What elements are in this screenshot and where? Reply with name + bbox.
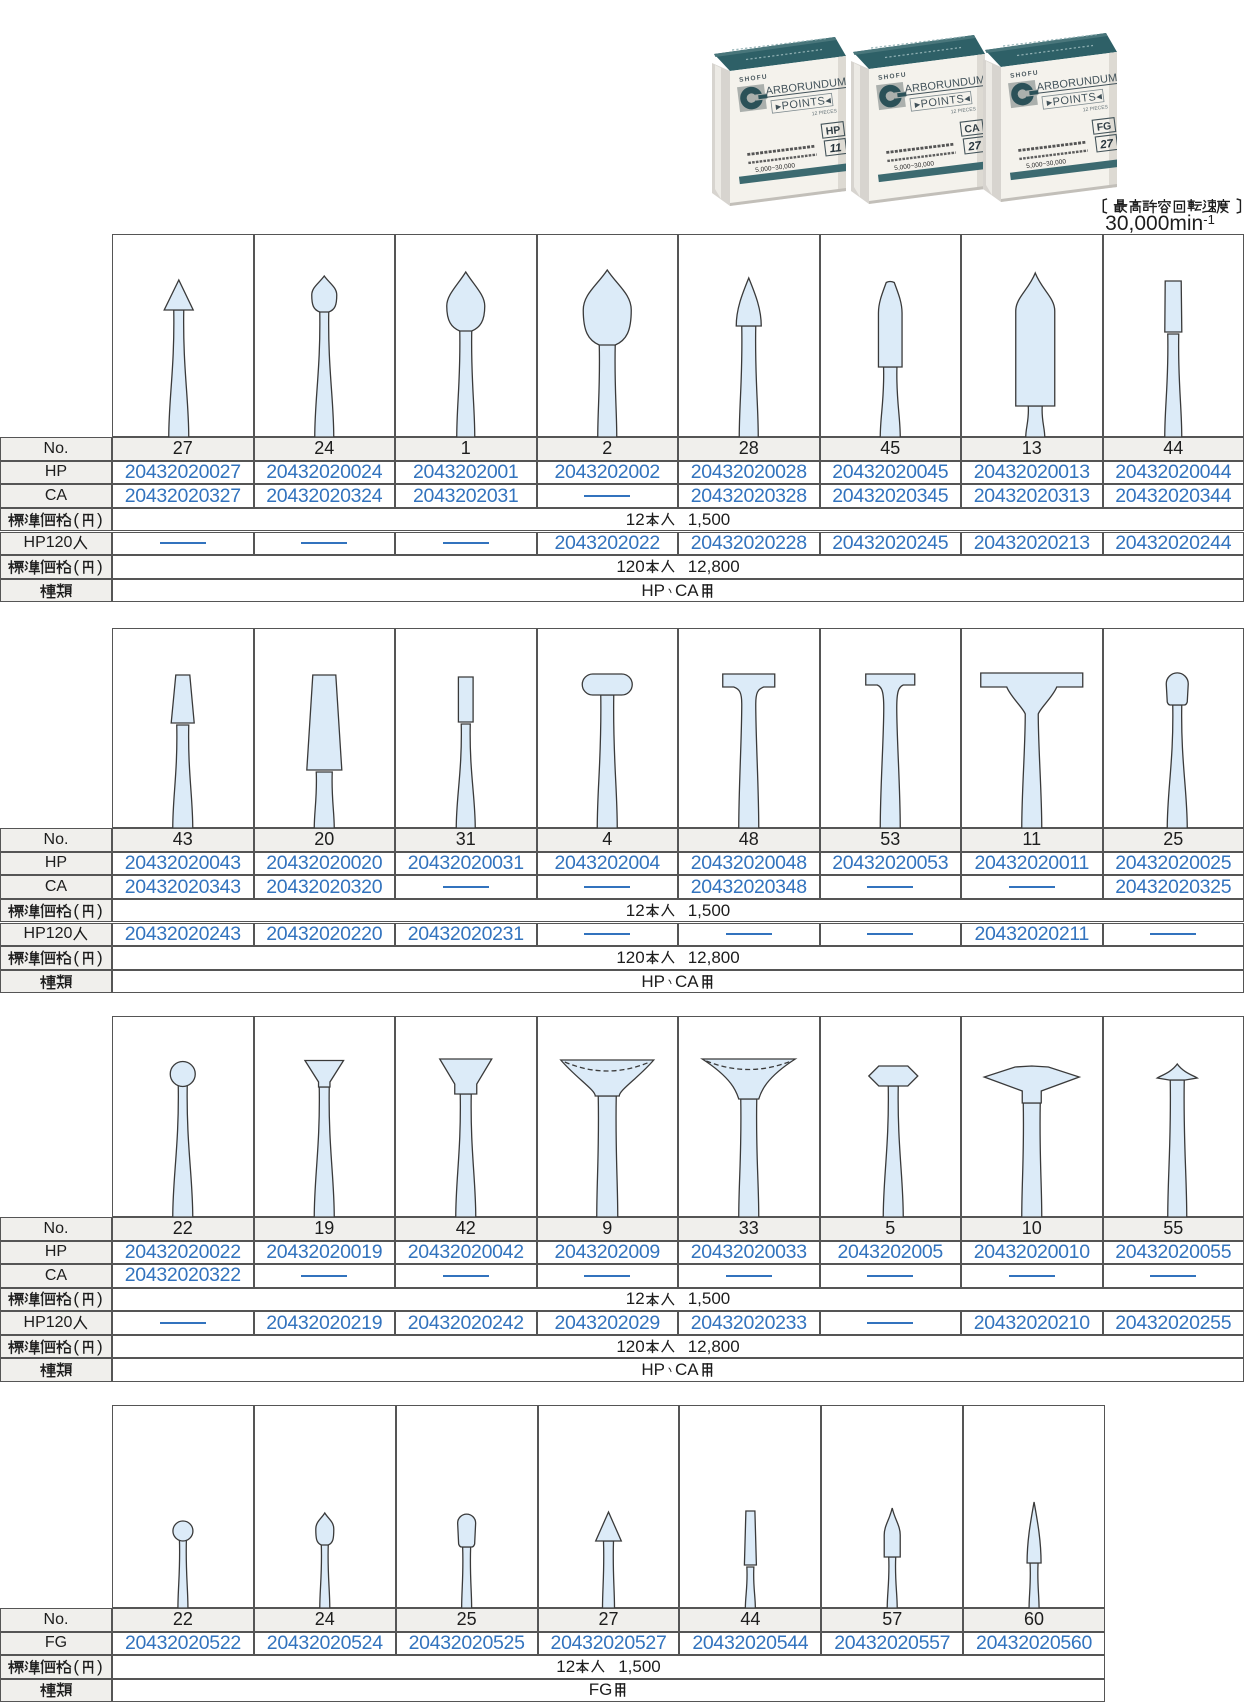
svg-text:27: 27 [967,140,983,154]
svg-text:11: 11 [829,142,842,155]
svg-text:CA: CA [964,122,981,136]
svg-text:HP: HP [825,124,841,138]
svg-text:FG: FG [1096,120,1112,134]
svg-text:27: 27 [1099,138,1115,152]
